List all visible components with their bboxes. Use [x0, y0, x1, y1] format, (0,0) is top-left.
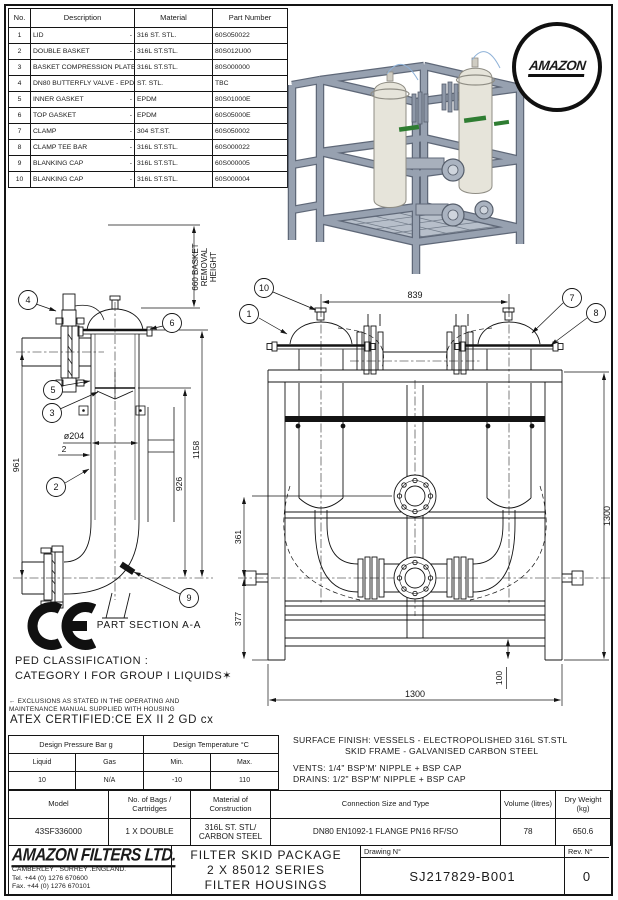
table-row: 8CLAMP TEE BAR-316L ST.STL.60S000022 — [9, 140, 288, 156]
dim-wall: 2 — [62, 444, 67, 454]
company-cell: AMAZON FILTERS LTD. CAMBERLEY . SURREY .… — [9, 846, 172, 895]
surface-finish-note: SURFACE FINISH: VESSELS - ELECTROPOLISHE… — [293, 735, 567, 757]
part-material: 316L ST.STL. — [135, 172, 213, 188]
val-max: 110 — [211, 772, 279, 790]
col-material: Material of Construction — [191, 791, 271, 819]
separator: - — [130, 32, 132, 39]
part-material: 316L ST.STL. — [135, 156, 213, 172]
col-weight: Dry Weight (kg) — [556, 791, 611, 819]
part-description: BASKET COMPRESSION PLATE — [33, 64, 135, 71]
support-plate — [79, 406, 174, 522]
part-material: 316L ST.STL. — [135, 44, 213, 60]
table-row: 6TOP GASKET-EPDM60S05000E — [9, 108, 288, 124]
revision-cell: Rev. N° 0 — [565, 846, 609, 895]
balloon-4: 4 — [25, 295, 30, 305]
table-row: 7CLAMP-304 ST.ST.60S050002 — [9, 124, 288, 140]
ped-line-2: CATEGORY I FOR GROUP I LIQUIDS✶ — [15, 669, 232, 684]
connection-value: DN80 EN1092-1 FLANGE PN16 RF/SO — [271, 819, 501, 846]
drawing-number: SJ217829-B001 — [361, 858, 564, 895]
part-no: 5 — [9, 92, 31, 108]
balloon-2: 2 — [53, 482, 58, 492]
part-description: CLAMP TEE BAR — [33, 144, 87, 151]
part-no: 6 — [9, 108, 31, 124]
table-row: 1LID-316 ST. STL.60S050022 — [9, 28, 288, 44]
col-volume: Volume (litres) — [501, 791, 556, 819]
ce-mark-icon — [14, 600, 96, 652]
table-row: 4DN80 BUTTERFLY VALVE - EPDM-ST. STL.TBC — [9, 76, 288, 92]
balloon-3: 3 — [49, 408, 54, 418]
dim-361: 361 — [233, 530, 243, 544]
val-gas: N/A — [76, 772, 144, 790]
butterfly-valve — [22, 294, 104, 392]
spec-value-row: 43SF336000 1 X DOUBLE 316L ST. STL/ CARB… — [9, 819, 611, 846]
dim-961: 961 — [11, 458, 21, 472]
section-label: PART SECTION A-A — [97, 620, 202, 631]
col-bags: No. of Bags / Cartridges — [109, 791, 191, 819]
outlet-flange — [22, 546, 63, 608]
dim-1300-width: 1300 — [405, 689, 425, 699]
col-min: Min. — [144, 754, 211, 772]
separator: - — [130, 160, 132, 167]
balloon-1: 1 — [246, 309, 251, 319]
part-material: 316 ST. STL. — [135, 28, 213, 44]
company-fax: Fax. +44 (0) 1276 670101 — [12, 883, 168, 891]
part-description: BLANKING CAP — [33, 176, 83, 183]
part-description: INNER GASKET — [33, 96, 84, 103]
balloon-6: 6 — [169, 318, 174, 328]
ped-classification: PED CLASSIFICATION : CATEGORY I FOR GROU… — [15, 654, 232, 684]
balloon-5: 5 — [50, 385, 55, 395]
footnote-line-1: ← EXCLUSIONS AS STATED IN THE OPERATING … — [9, 698, 179, 706]
spec-table: Model No. of Bags / Cartridges Material … — [8, 790, 611, 846]
temperature-header: Design Temperature °C — [144, 736, 279, 754]
drawing-title: FILTER SKID PACKAGE 2 X 85012 SERIES FIL… — [172, 846, 361, 895]
table-row: 3BASKET COMPRESSION PLATE-316L ST.STL.80… — [9, 60, 288, 76]
dim-diameter: ø204 — [64, 431, 85, 441]
part-no: 8 — [9, 140, 31, 156]
atex-certification: ATEX CERTIFIED:CE EX II 2 GD cx — [10, 714, 214, 726]
part-description: CLAMP — [33, 128, 56, 135]
title-block: AMAZON FILTERS LTD. CAMBERLEY . SURREY .… — [8, 845, 612, 896]
balloon-7: 7 — [569, 293, 574, 303]
part-no: 7 — [9, 124, 31, 140]
balloon-10: 10 — [259, 283, 269, 293]
part-no: 10 — [9, 172, 31, 188]
parts-header-row: No. Description Material Part Number — [9, 9, 288, 28]
separator: - — [130, 176, 132, 183]
dim-removal-3: HEIGHT — [209, 252, 218, 282]
separator: - — [130, 48, 132, 55]
part-material: 316L ST.STL. — [135, 60, 213, 76]
col-model: Model — [9, 791, 109, 819]
col-connection: Connection Size and Type — [271, 791, 501, 819]
title-line-1: FILTER SKID PACKAGE — [190, 848, 341, 863]
part-description: TOP GASKET — [33, 112, 76, 119]
part-material: ST. STL. — [135, 76, 213, 92]
exclusions-footnote: ← EXCLUSIONS AS STATED IN THE OPERATING … — [9, 698, 179, 715]
col-gas: Gas — [76, 754, 144, 772]
dim-1300-height: 1300 — [602, 506, 612, 526]
separator: - — [130, 96, 132, 103]
table-row: 5INNER GASKET-EPDM80S01000E — [9, 92, 288, 108]
surface-line-1: SURFACE FINISH: VESSELS - ELECTROPOLISHE… — [293, 735, 567, 746]
left-drawing: 4 6 5 3 2 9 660 BASKET REMOVAL HEIGHT 11… — [8, 222, 238, 642]
part-description: DN80 BUTTERFLY VALVE - EPDM — [33, 80, 135, 87]
ped-line-1: PED CLASSIFICATION : — [15, 654, 232, 669]
company-logo: AMAZON FILTERS LTD. — [11, 846, 176, 868]
separator: - — [130, 128, 132, 135]
amazon-logo-text: AMAZON — [528, 58, 586, 77]
company-tel: Tel. +44 (0) 1276 670600 — [12, 875, 168, 883]
dim-1158: 1158 — [191, 441, 201, 460]
part-no: 9 — [9, 156, 31, 172]
volume-value: 78 — [501, 819, 556, 846]
part-description: LID — [33, 32, 44, 39]
left-drawing-text: 4 6 5 3 2 9 660 BASKET REMOVAL HEIGHT 11… — [11, 243, 218, 631]
part-material: 304 ST.ST. — [135, 124, 213, 140]
dim-removal-2: REMOVAL — [200, 247, 209, 286]
title-line-3: FILTER HOUSINGS — [205, 878, 328, 893]
table-row: 9BLANKING CAP-316L ST.STL.60S000005 — [9, 156, 288, 172]
drawing-number-label: Drawing N° — [361, 846, 564, 858]
part-description: DOUBLE BASKET — [33, 48, 90, 55]
dim-839: 839 — [407, 290, 422, 300]
material-value: 316L ST. STL/ CARBON STEEL — [191, 819, 271, 846]
balloons — [240, 279, 606, 346]
val-liquid: 10 — [9, 772, 76, 790]
col-max: Max. — [211, 754, 279, 772]
table-row: 2DOUBLE BASKET-316L ST.STL.80S012U00 — [9, 44, 288, 60]
val-min: -10 — [144, 772, 211, 790]
vessel-section — [64, 296, 152, 618]
drawing-number-cell: Drawing N° SJ217829-B001 — [361, 846, 565, 895]
bags-value: 1 X DOUBLE — [109, 819, 191, 846]
dim-removal-1: 660 BASKET — [191, 243, 200, 290]
part-material: EPDM — [135, 108, 213, 124]
part-no: 2 — [9, 44, 31, 60]
centerlines — [13, 302, 213, 600]
col-part-number: Part Number — [213, 9, 288, 28]
part-no: 1 — [9, 28, 31, 44]
pressure-header: Design Pressure Bar g — [9, 736, 144, 754]
dim-926: 926 — [174, 477, 184, 491]
amazon-logo-badge: AMAZON — [512, 22, 602, 112]
design-table: Design Pressure Bar g Design Temperature… — [8, 735, 279, 790]
drains-line: DRAINS: 1/2" BSP'M' NIPPLE + BSP CAP — [293, 774, 466, 785]
col-material: Material — [135, 9, 213, 28]
weight-value: 650.6 — [556, 819, 611, 846]
vents-line: VENTS: 1/4" BSP'M' NIPPLE + BSP CAP — [293, 763, 466, 774]
part-no: 3 — [9, 60, 31, 76]
separator: - — [130, 144, 132, 151]
surface-line-2: SKID FRAME - GALVANISED CARBON STEEL — [293, 746, 567, 757]
title-line-2: 2 X 85012 SERIES — [207, 863, 325, 878]
balloon-9: 9 — [186, 593, 191, 603]
separator: - — [130, 112, 132, 119]
part-description: BLANKING CAP — [33, 160, 83, 167]
balloon-8: 8 — [593, 308, 598, 318]
right-drawing: 10 1 7 8 839 1300 361 377 1300 100 — [232, 268, 616, 712]
table-row: 10BLANKING CAP-316L ST.STL.60S000004 — [9, 172, 288, 188]
vessel-domes — [267, 308, 563, 370]
parts-table: No. Description Material Part Number 1LI… — [8, 8, 288, 188]
part-material: EPDM — [135, 92, 213, 108]
col-liquid: Liquid — [9, 754, 76, 772]
filter-vessels — [371, 52, 500, 208]
vents-drains-note: VENTS: 1/4" BSP'M' NIPPLE + BSP CAP DRAI… — [293, 763, 466, 785]
spec-header-row: Model No. of Bags / Cartridges Material … — [9, 791, 611, 819]
drawing-sheet: No. Description Material Part Number 1LI… — [0, 0, 618, 900]
upper-piping — [357, 314, 473, 374]
revision-label: Rev. N° — [565, 846, 609, 858]
dim-377: 377 — [233, 612, 243, 626]
col-no: No. — [9, 9, 31, 28]
part-no: 4 — [9, 76, 31, 92]
part-material: 316L ST.STL. — [135, 140, 213, 156]
col-description: Description — [31, 9, 135, 28]
dim-100: 100 — [494, 671, 504, 685]
model-value: 43SF336000 — [9, 819, 109, 846]
revision-number: 0 — [565, 858, 609, 895]
